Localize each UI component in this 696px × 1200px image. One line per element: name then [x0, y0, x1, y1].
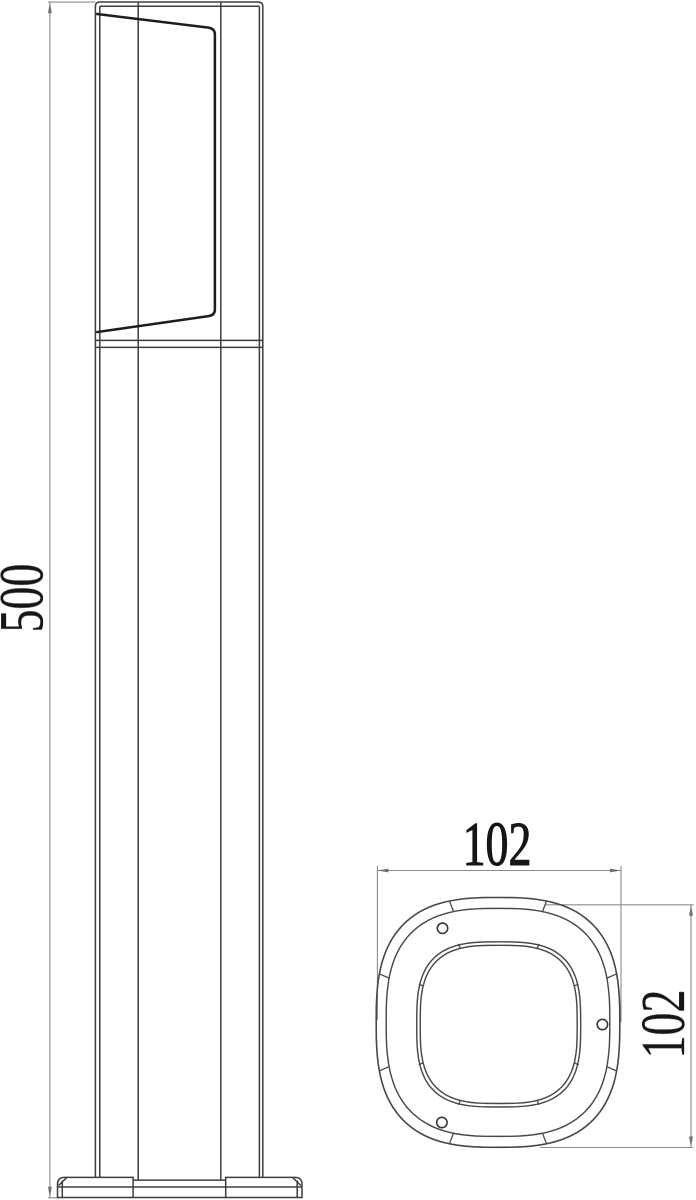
svg-text:102: 102	[628, 990, 696, 1059]
svg-text:102: 102	[463, 809, 532, 878]
svg-text:500: 500	[0, 564, 56, 633]
